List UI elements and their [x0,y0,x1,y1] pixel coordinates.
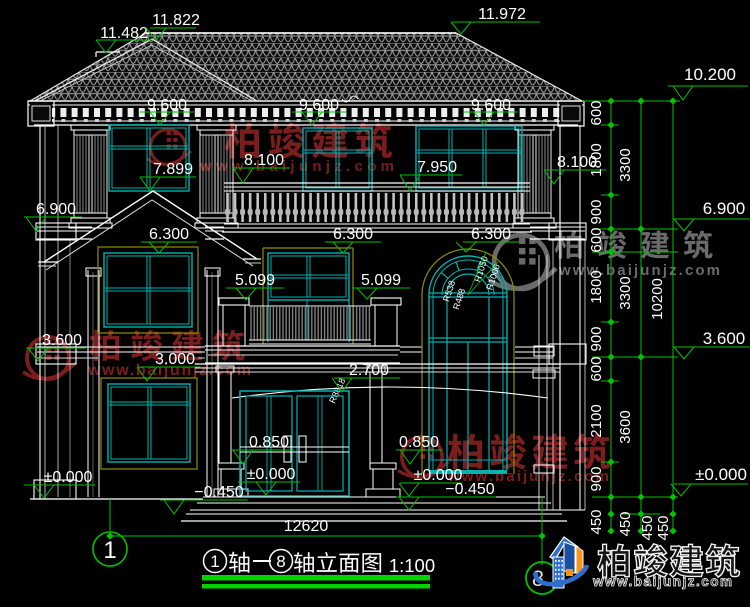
svg-text:11.822: 11.822 [152,12,200,29]
svg-text:8: 8 [276,552,285,571]
svg-text:1800: 1800 [588,143,605,176]
svg-text:3.600: 3.600 [703,329,746,348]
svg-text:1:100: 1:100 [389,555,435,576]
svg-text:2100: 2100 [588,404,605,437]
svg-text:3600: 3600 [617,410,634,443]
svg-text:6.300: 6.300 [333,226,373,243]
svg-text:1: 1 [210,552,219,571]
svg-text:600: 600 [588,356,605,381]
svg-text:900: 900 [588,326,605,351]
svg-text:450: 450 [588,509,605,534]
svg-text:900: 900 [588,466,605,491]
svg-text:11.972: 11.972 [478,6,526,23]
svg-text:7.950: 7.950 [417,159,457,176]
svg-text:3300: 3300 [617,276,634,309]
svg-text:8.100: 8.100 [244,152,284,169]
svg-text:−0.450: −0.450 [445,481,494,498]
svg-text:3300: 3300 [617,148,634,181]
svg-text:www.baijunjz.com: www.baijunjz.com [558,262,722,279]
svg-text:600: 600 [588,100,605,125]
svg-text:±0.000: ±0.000 [44,469,93,486]
svg-text:450: 450 [655,515,672,540]
svg-text:6.900: 6.900 [703,199,746,218]
svg-text:6.900: 6.900 [36,201,76,218]
svg-text:3.600: 3.600 [42,332,82,349]
svg-text:10200: 10200 [649,278,666,320]
svg-text:450: 450 [617,511,634,536]
svg-text:0.850: 0.850 [399,434,439,451]
svg-text:5.099: 5.099 [235,272,275,289]
svg-text:5.099: 5.099 [361,272,401,289]
svg-text:12620: 12620 [284,518,329,535]
svg-text:www.baijunjz.com: www.baijunjz.com [592,574,733,589]
svg-text:±0.000: ±0.000 [247,466,296,483]
svg-text:450: 450 [639,515,656,540]
svg-text:0.850: 0.850 [249,434,289,451]
svg-text:2.700: 2.700 [349,362,389,379]
svg-text:10.200: 10.200 [684,65,736,84]
svg-text:600: 600 [588,227,605,252]
svg-text:7.899: 7.899 [153,161,193,178]
svg-text:6.300: 6.300 [149,226,189,243]
svg-text:6.300: 6.300 [471,226,511,243]
svg-text:1: 1 [103,537,116,564]
svg-text:−0.450: −0.450 [194,484,243,501]
svg-text:±0.000: ±0.000 [695,465,747,484]
svg-text:3.000: 3.000 [155,351,195,368]
svg-text:1800: 1800 [588,270,605,303]
svg-text:900: 900 [588,199,605,224]
